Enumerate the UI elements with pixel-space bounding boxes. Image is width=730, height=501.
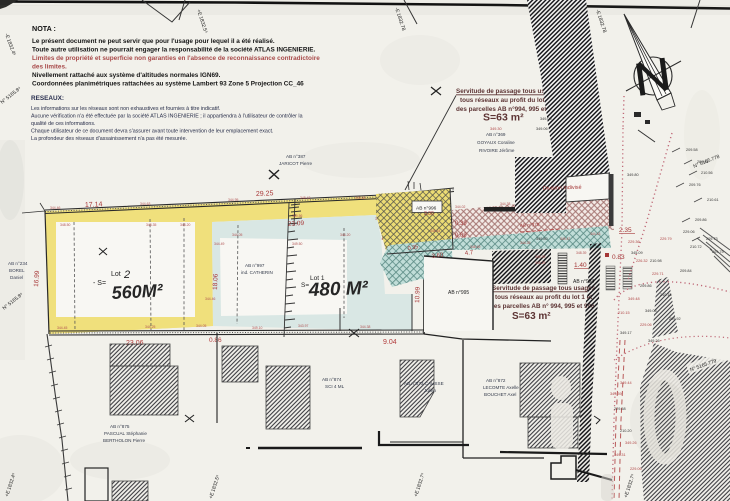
svg-text:Limites de propriété et superf: Limites de propriété et superficie non g… <box>32 55 320 62</box>
svg-text:349.39: 349.39 <box>535 255 545 259</box>
svg-text:348.39: 348.39 <box>576 251 586 255</box>
svg-text:9.04: 9.04 <box>383 339 397 346</box>
svg-text:344.95: 344.95 <box>228 198 238 202</box>
svg-text:RIVOIRE Jérôme: RIVOIRE Jérôme <box>479 148 515 153</box>
svg-text:3.00: 3.00 <box>424 211 434 217</box>
svg-text:SCI 4 ML: SCI 4 ML <box>325 384 345 389</box>
svg-text:AB n°995: AB n°995 <box>448 290 469 296</box>
svg-text:210.72: 210.72 <box>690 245 702 249</box>
svg-text:348.20: 348.20 <box>180 223 190 227</box>
svg-text:349.30: 349.30 <box>490 127 502 131</box>
svg-text:349.26: 349.26 <box>648 339 660 343</box>
svg-text:349.31: 349.31 <box>614 453 626 457</box>
svg-text:209.73: 209.73 <box>706 237 718 241</box>
svg-text:PASCUAL Stéphanie: PASCUAL Stéphanie <box>104 431 147 436</box>
svg-text:ind. CATHERIN: ind. CATHERIN <box>241 270 273 275</box>
svg-text:Le présent document ne peut se: Le présent document ne peut servir que p… <box>32 38 275 45</box>
svg-text:229.06: 229.06 <box>640 323 652 327</box>
svg-text:29.25: 29.25 <box>256 190 274 198</box>
svg-text:349.06: 349.06 <box>645 309 657 313</box>
svg-text:348.49: 348.49 <box>470 245 480 249</box>
svg-text:344.63: 344.63 <box>140 202 150 206</box>
svg-text:18.06: 18.06 <box>212 273 220 290</box>
svg-text:1.40: 1.40 <box>574 262 587 269</box>
svg-text:349.10: 349.10 <box>252 326 262 330</box>
svg-text:344.25: 344.25 <box>145 325 155 329</box>
svg-text:349.48: 349.48 <box>628 297 640 301</box>
svg-text:349.17: 349.17 <box>620 331 632 335</box>
svg-text:226.32: 226.32 <box>636 259 648 263</box>
svg-text:343.97: 343.97 <box>298 324 308 328</box>
svg-text:210.20: 210.20 <box>620 429 632 433</box>
svg-text:2: 2 <box>123 269 130 281</box>
svg-text:349.80: 349.80 <box>536 237 548 241</box>
svg-text:349.44: 349.44 <box>620 381 632 385</box>
svg-text:209.75: 209.75 <box>712 250 724 254</box>
svg-text:209.76: 209.76 <box>689 183 701 187</box>
svg-text:AB n°873 CAUSSE: AB n°873 CAUSSE <box>404 381 444 386</box>
svg-text:RESEAUX:: RESEAUX: <box>31 95 64 102</box>
svg-text:348.50: 348.50 <box>60 223 70 227</box>
svg-text:AB n°369: AB n°369 <box>486 132 506 137</box>
svg-text:344.39: 344.39 <box>520 241 530 245</box>
svg-text:349.09: 349.09 <box>540 117 552 121</box>
svg-text:560M²: 560M² <box>111 280 164 303</box>
svg-text:LECOMTE Axelle: LECOMTE Axelle <box>483 385 519 390</box>
svg-text:0.83: 0.83 <box>612 254 625 261</box>
svg-text:- S=: - S= <box>93 280 106 287</box>
svg-text:Julien: Julien <box>424 388 436 393</box>
svg-text:23.09: 23.09 <box>288 220 305 228</box>
svg-text:344.05: 344.05 <box>232 233 242 237</box>
svg-text:10.99: 10.99 <box>414 286 422 303</box>
svg-text:344.43: 344.43 <box>590 232 600 236</box>
svg-text:Lot: Lot <box>111 271 121 278</box>
svg-text:tous réseaux au profit du lot: tous réseaux au profit du lot 1 et <box>495 294 593 301</box>
svg-text:348.35: 348.35 <box>146 223 156 227</box>
svg-text:229.58: 229.58 <box>614 407 626 411</box>
svg-text:229.06: 229.06 <box>683 230 695 234</box>
svg-text:210.15: 210.15 <box>618 311 630 315</box>
svg-text:348.43: 348.43 <box>300 196 310 200</box>
svg-text:NOTA :: NOTA : <box>32 24 56 33</box>
svg-text:348.44: 348.44 <box>430 229 440 233</box>
svg-text:344.45: 344.45 <box>57 326 67 330</box>
svg-text:344.46: 344.46 <box>205 297 215 301</box>
svg-text:349.39: 349.39 <box>610 392 622 396</box>
svg-text:349.50: 349.50 <box>292 242 302 246</box>
svg-text:210.61: 210.61 <box>707 198 719 202</box>
svg-text:S=63 m²: S=63 m² <box>512 311 551 322</box>
svg-text:344.02: 344.02 <box>455 205 465 209</box>
svg-text:349.29: 349.29 <box>535 261 545 265</box>
svg-text:210.15: 210.15 <box>660 293 672 297</box>
svg-text:344.05: 344.05 <box>196 324 206 328</box>
svg-text:qualité de ces informations.: qualité de ces informations. <box>31 121 95 127</box>
svg-text:344.46: 344.46 <box>50 206 60 210</box>
svg-text:344.38: 344.38 <box>500 202 510 206</box>
svg-text:16.99: 16.99 <box>33 270 41 287</box>
svg-text:BOUCHET Axel: BOUCHET Axel <box>484 392 516 397</box>
svg-text:229.79: 229.79 <box>660 237 672 241</box>
svg-text:Aucune vérification n'a été ef: Aucune vérification n'a été effectuée pa… <box>31 114 303 120</box>
svg-text:Servitude de passage tous usag: Servitude de passage tous usages <box>492 285 596 292</box>
svg-text:17.14: 17.14 <box>85 201 103 209</box>
svg-text:229.71: 229.71 <box>652 272 664 276</box>
svg-text:480 M²: 480 M² <box>307 278 369 301</box>
svg-text:AB n°997: AB n°997 <box>245 263 265 268</box>
svg-text:Chaque utilisateur de ce docum: Chaque utilisateur de ce document devra … <box>31 129 273 135</box>
svg-text:Les informations sur les résea: Les informations sur les réseaux sont no… <box>31 106 220 112</box>
svg-text:229.36: 229.36 <box>628 240 640 244</box>
svg-text:0.86: 0.86 <box>209 337 222 344</box>
svg-text:AB n°872: AB n°872 <box>486 378 506 383</box>
svg-text:209.86: 209.86 <box>640 284 652 288</box>
svg-text:des parcelles AB n° 994, 995 e: des parcelles AB n° 994, 995 et 996 <box>490 302 595 310</box>
svg-text:344.38: 344.38 <box>360 325 370 329</box>
svg-text:209.86: 209.86 <box>695 218 707 222</box>
svg-text:2.35: 2.35 <box>619 227 632 234</box>
svg-text:229.06: 229.06 <box>630 467 642 471</box>
svg-text:349.56: 349.56 <box>292 214 302 218</box>
svg-text:0.09: 0.09 <box>455 233 467 239</box>
svg-text:348.46: 348.46 <box>355 196 365 200</box>
svg-text:La profondeur des réseaux d'as: La profondeur des réseaux d'assainisseme… <box>31 136 187 142</box>
svg-text:345.09: 345.09 <box>631 251 643 255</box>
svg-text:344.20: 344.20 <box>340 233 350 237</box>
svg-text:209.84: 209.84 <box>680 269 692 273</box>
svg-text:Nivellement rattaché aux systè: Nivellement rattaché aux système d'altit… <box>32 72 221 79</box>
svg-text:AB n°378: AB n°378 <box>520 222 540 228</box>
svg-text:4.7: 4.7 <box>465 250 475 257</box>
svg-text:349.80: 349.80 <box>627 173 639 177</box>
svg-text:Toute autre utilisation ne pou: Toute autre utilisation ne pourrait enga… <box>32 47 315 54</box>
svg-text:S=63 m²: S=63 m² <box>483 112 524 124</box>
svg-text:349.06: 349.06 <box>536 127 548 131</box>
svg-text:AB n°875: AB n°875 <box>110 424 130 429</box>
svg-text:des limites.: des limites. <box>32 64 67 71</box>
svg-text:0.39: 0.39 <box>455 221 467 227</box>
svg-text:GOYAUX Coraline: GOYAUX Coraline <box>477 140 515 145</box>
svg-text:tous réseaux au profit du lot: tous réseaux au profit du lot 2 et <box>460 97 558 104</box>
svg-text:209.92: 209.92 <box>669 317 681 321</box>
svg-text:Coordonnées planimétriques rat: Coordonnées planimétriques rattachées au… <box>32 81 304 88</box>
svg-text:349.47: 349.47 <box>560 237 570 241</box>
svg-text:344.49: 344.49 <box>214 242 224 246</box>
svg-text:AB n°874: AB n°874 <box>322 377 342 382</box>
svg-text:210.98: 210.98 <box>650 259 662 263</box>
